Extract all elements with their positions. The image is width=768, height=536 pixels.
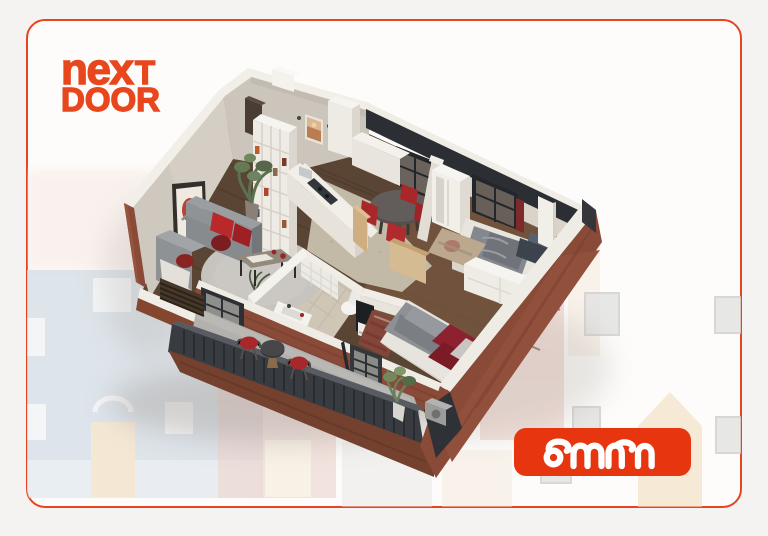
svg-text:DOOR: DOOR [61, 81, 160, 118]
